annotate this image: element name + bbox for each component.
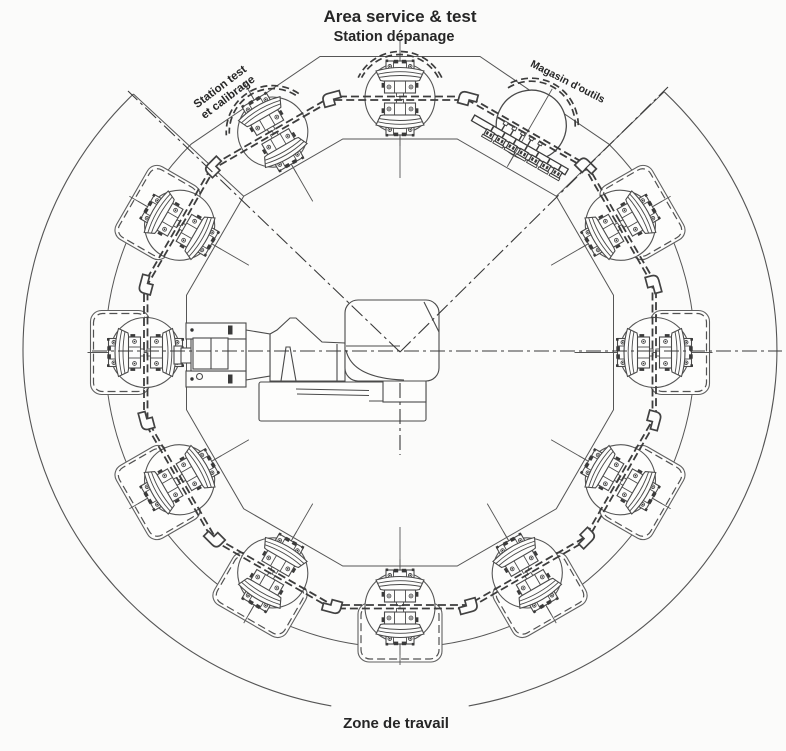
svg-text:Area service & test: Area service & test — [323, 7, 476, 26]
svg-text:Station dépanage: Station dépanage — [334, 29, 455, 45]
svg-text:Zone de travail: Zone de travail — [343, 715, 449, 732]
